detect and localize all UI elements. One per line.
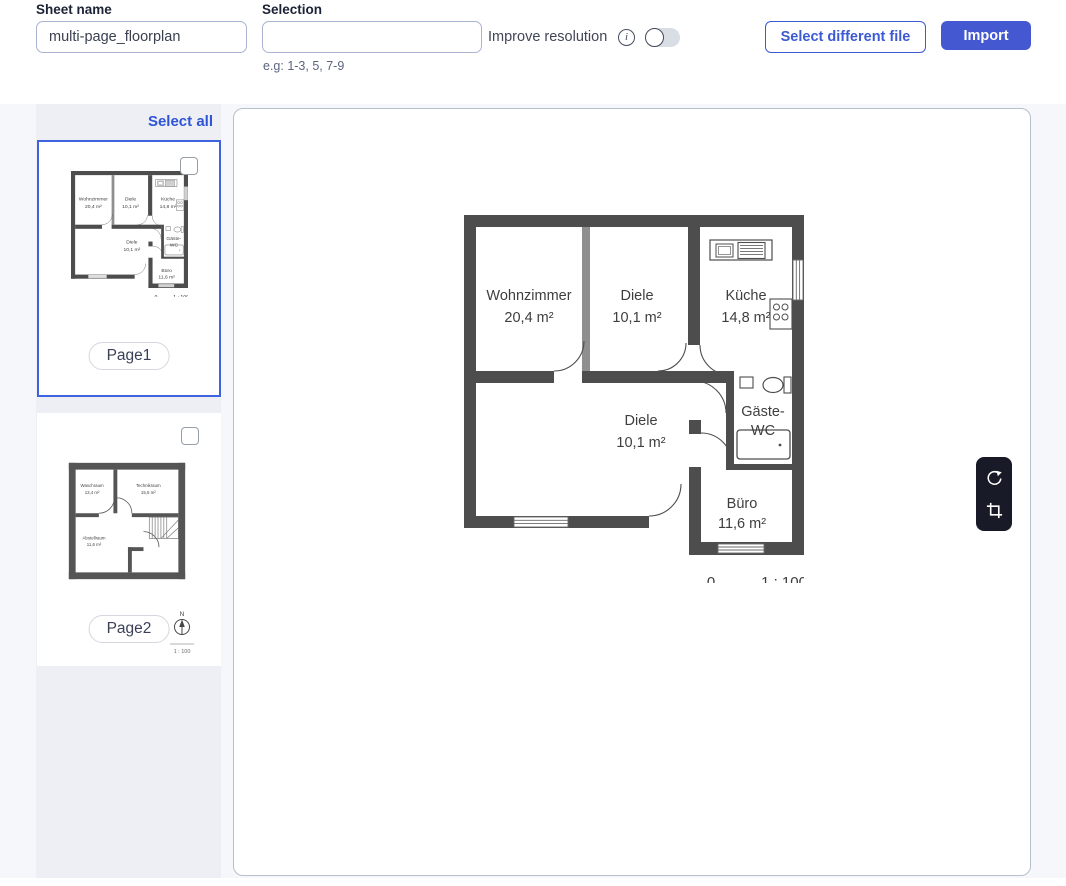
page-sidebar: Select all Page1 Page2 N 1 : 100 xyxy=(36,104,221,878)
info-icon[interactable]: i xyxy=(618,29,635,46)
rotate-button[interactable] xyxy=(983,467,1005,489)
toggle-knob xyxy=(645,28,664,47)
page2-checkbox[interactable] xyxy=(181,427,199,445)
sheet-name-input[interactable] xyxy=(36,21,247,53)
header: Sheet name Selection e.g: 1-3, 5, 7-9 Im… xyxy=(0,0,1066,104)
page2-pill-label: Page2 xyxy=(89,615,170,643)
page-card-1[interactable]: Page1 xyxy=(37,140,221,397)
rotate-icon xyxy=(985,469,1004,488)
sheet-name-label: Sheet name xyxy=(36,2,112,17)
import-button[interactable]: Import xyxy=(941,21,1031,50)
crop-icon xyxy=(985,501,1004,520)
page1-pill-label: Page1 xyxy=(89,342,170,370)
thumb-scale-label: 1 : 100 xyxy=(174,649,191,655)
compass-north-label: N xyxy=(180,611,185,618)
preview-panel xyxy=(233,108,1031,876)
page-card-2[interactable]: Page2 N 1 : 100 xyxy=(37,413,221,666)
compass-icon: N 1 : 100 xyxy=(167,608,197,658)
selection-hint: e.g: 1-3, 5, 7-9 xyxy=(263,59,344,73)
page1-checkbox[interactable] xyxy=(180,157,198,175)
floorplan-preview xyxy=(464,215,804,583)
selection-input[interactable] xyxy=(262,21,482,53)
selection-label: Selection xyxy=(262,2,322,17)
edit-toolbar xyxy=(976,457,1012,531)
select-different-file-button[interactable]: Select different file xyxy=(765,21,926,53)
select-all-link[interactable]: Select all xyxy=(148,113,213,130)
page1-thumbnail xyxy=(71,171,188,297)
improve-resolution-label: Improve resolution xyxy=(488,29,607,45)
page2-thumbnail xyxy=(64,458,190,584)
import-dialog: Sheet name Selection e.g: 1-3, 5, 7-9 Im… xyxy=(0,0,1066,886)
improve-resolution-toggle[interactable] xyxy=(646,28,680,47)
crop-button[interactable] xyxy=(983,499,1005,521)
